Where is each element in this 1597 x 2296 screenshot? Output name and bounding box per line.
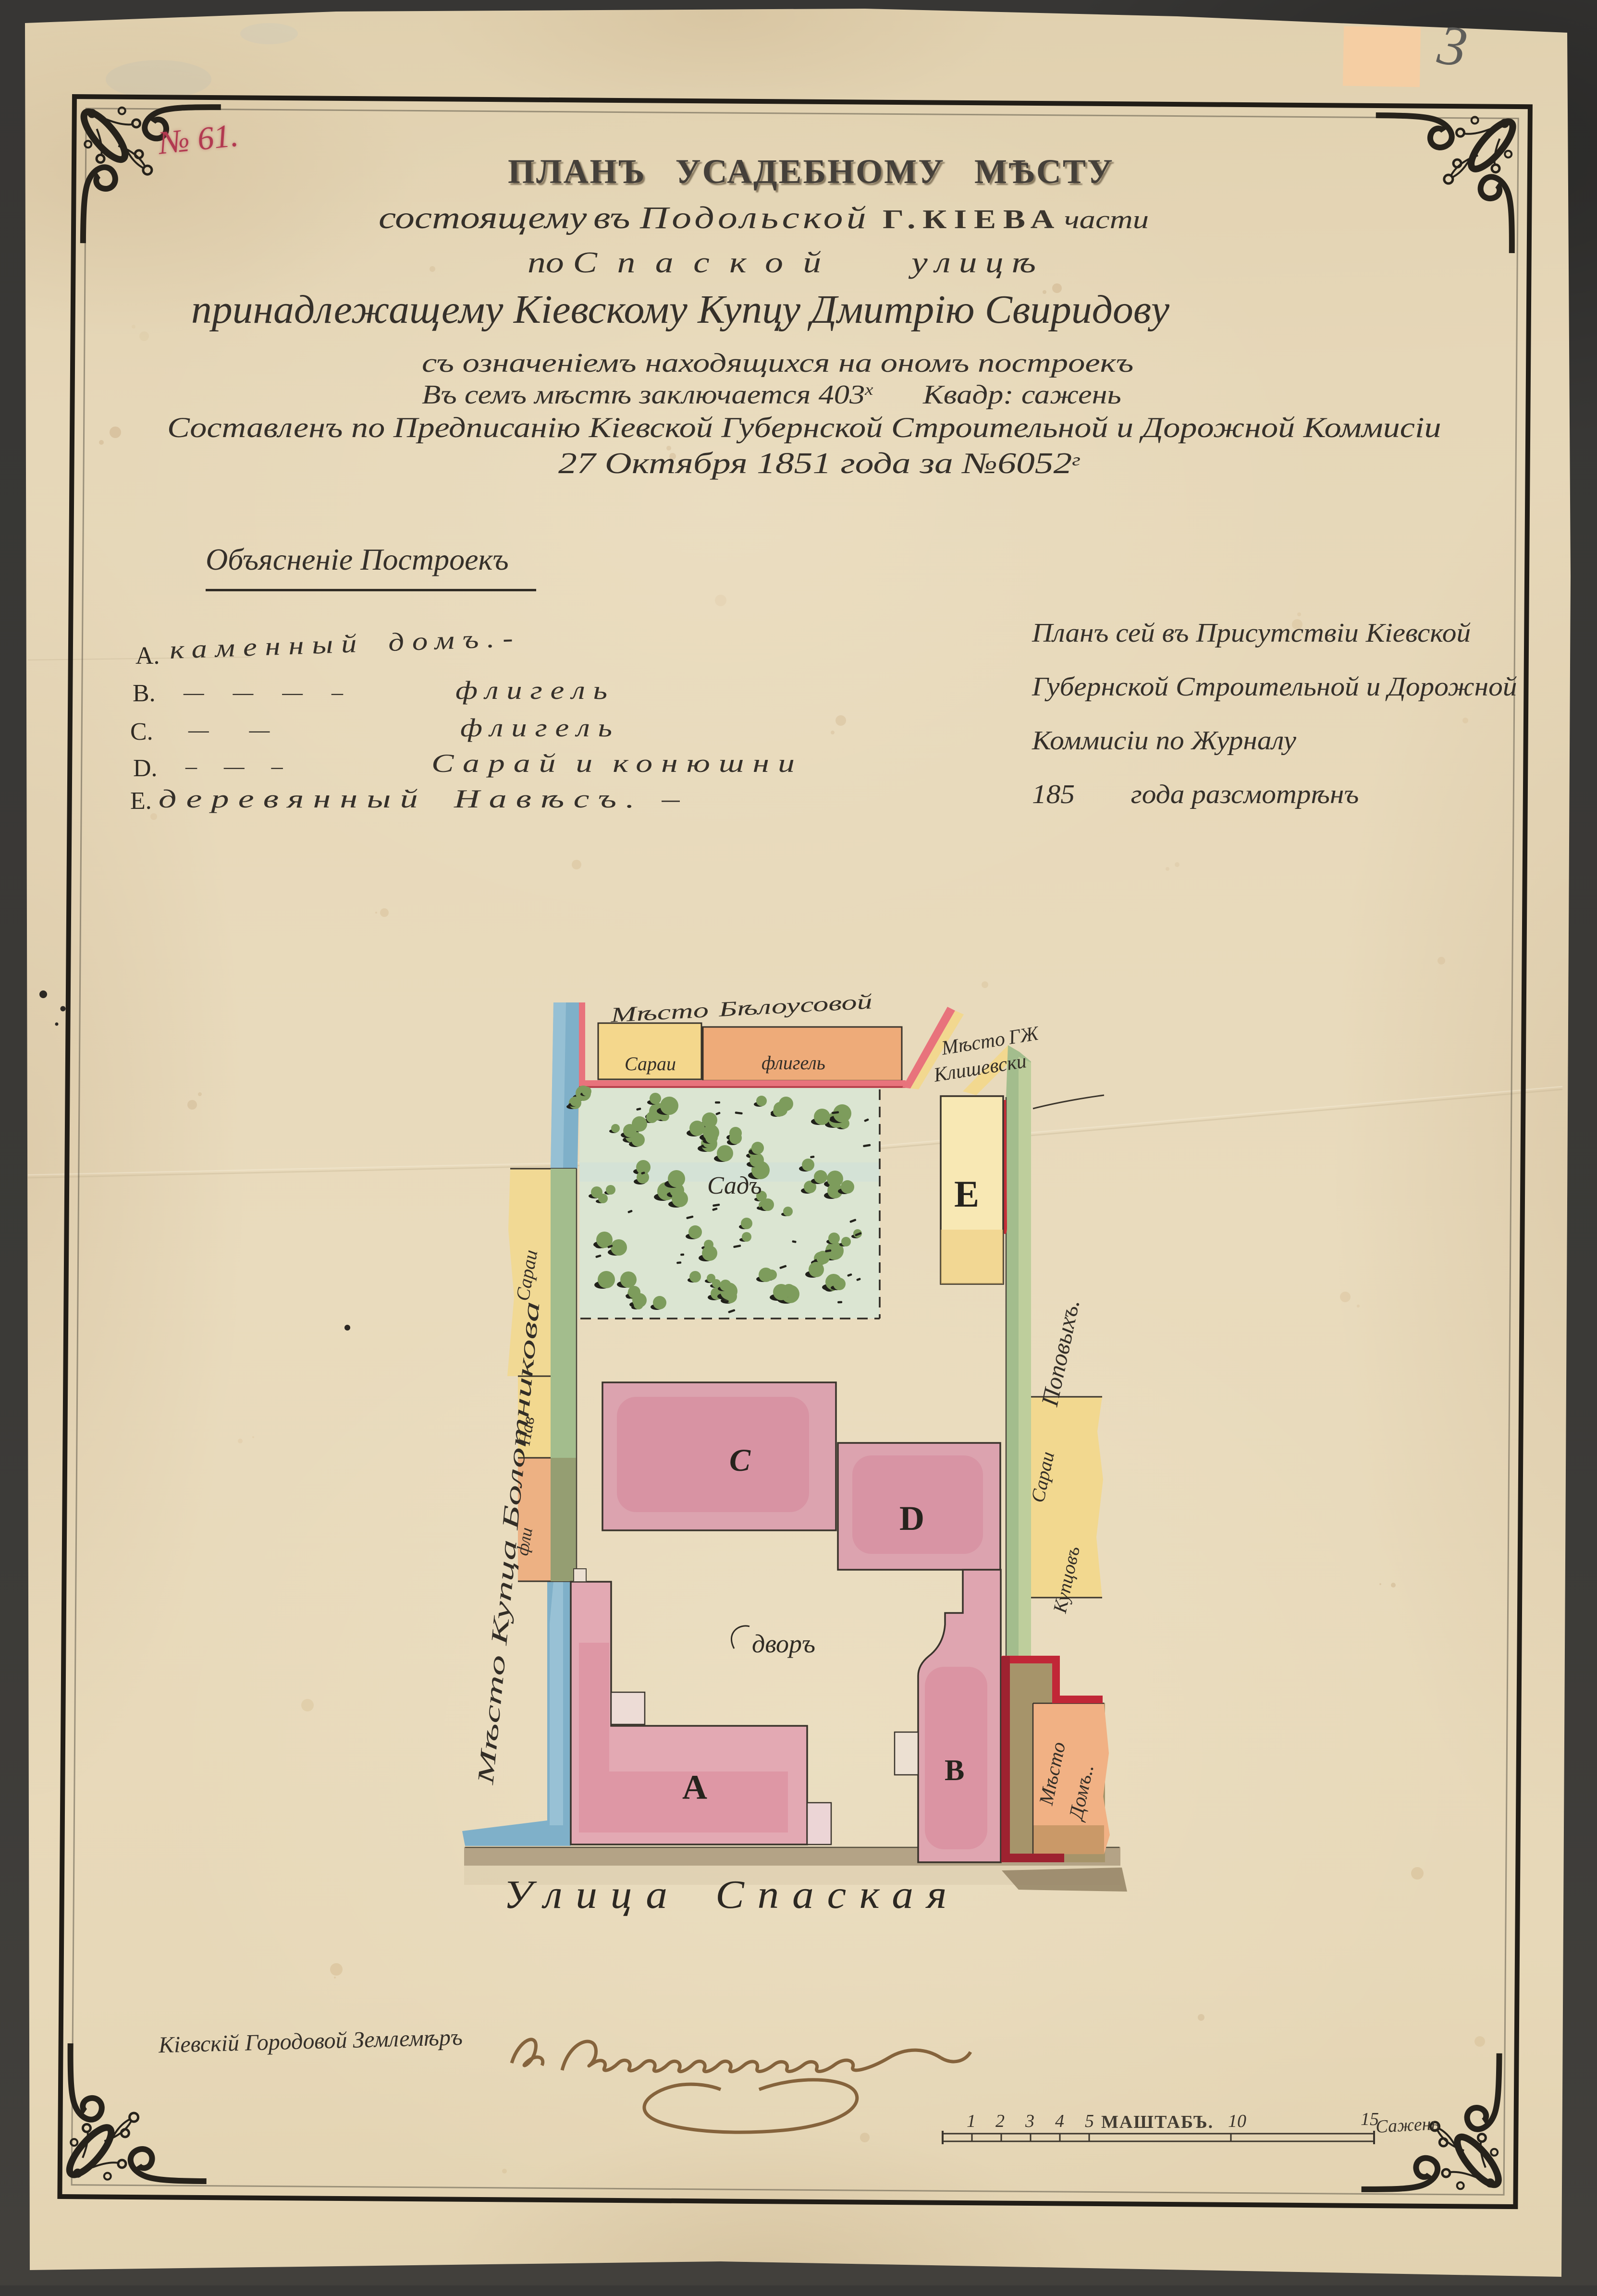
svg-text:A: A [682,1768,707,1807]
svg-text:дворъ: дворъ [752,1629,815,1658]
svg-text:Мѣсто Бѣлоусовой: Мѣсто Бѣлоусовой [609,989,872,1027]
svg-text:Сараи: Сараи [625,1053,676,1075]
svg-text:5: 5 [1085,2111,1094,2131]
svg-text:D: D [899,1499,924,1538]
svg-text:C: C [729,1443,751,1478]
svg-text:Поповыхъ.: Поповыхъ. [1036,1297,1085,1409]
svg-text:Сажень: Сажень [1375,2113,1439,2137]
svg-text:Садъ: Садъ [707,1172,762,1199]
svg-text:2: 2 [995,2111,1005,2131]
svg-text:10: 10 [1228,2111,1246,2131]
svg-text:1: 1 [967,2111,976,2131]
svg-text:Улица Спаская: Улица Спаская [504,1872,960,1917]
svg-text:B: B [945,1754,964,1787]
svg-text:3: 3 [1025,2111,1034,2131]
svg-text:МАШТАБЪ.: МАШТАБЪ. [1101,2112,1214,2132]
svg-text:4: 4 [1055,2111,1064,2131]
svg-text:флигель: флигель [762,1052,825,1074]
svg-text:E: E [954,1173,979,1215]
